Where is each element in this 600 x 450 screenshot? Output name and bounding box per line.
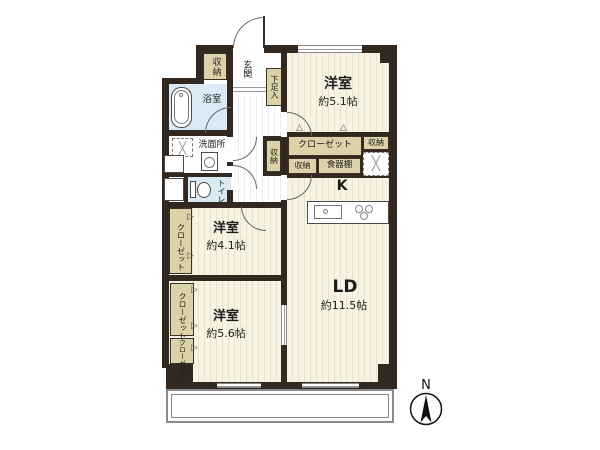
entrance-storage-box: 収納	[203, 53, 227, 80]
equipment-cross-icon: ╳	[179, 141, 186, 155]
room-living-dining-name: LD	[333, 278, 358, 297]
room-western3-name: 洋室	[213, 310, 239, 324]
pipe-space-box	[164, 178, 184, 201]
sliding-door-west3-living	[281, 305, 287, 345]
bathtub-drain	[179, 93, 183, 97]
wall	[281, 345, 287, 389]
shoe-cabinet-box: 下足入	[266, 68, 282, 106]
compass-north-label: N	[421, 378, 431, 393]
room-toilet-name: トイレ	[216, 179, 226, 203]
kitchen-sink	[314, 205, 342, 219]
wall	[184, 177, 188, 202]
sink-drain	[323, 209, 328, 214]
toilet-tank	[190, 181, 196, 198]
closet-west3-upper-label: クローゼット	[177, 292, 187, 328]
storage-top-right-label: 収納	[368, 139, 384, 148]
wall	[281, 208, 287, 305]
room-living-dining-size: 約11.5帖	[321, 300, 368, 312]
front-door-swing	[233, 17, 264, 48]
room-kitchen-name: K	[337, 179, 348, 194]
wall	[227, 190, 233, 202]
room-western1-size: 約5.1帖	[318, 96, 358, 108]
wall-left	[162, 78, 169, 368]
hall-storage-box: 収納	[266, 140, 281, 172]
closet-west3-lower-label: クローゼット	[178, 339, 187, 363]
wall	[166, 173, 232, 177]
room-western1-name: 洋室	[324, 77, 352, 92]
stove-burner	[360, 212, 368, 220]
room-washroom-name: 洗面所	[198, 141, 225, 151]
compass: N	[404, 376, 448, 430]
main-closet-box: クローゼット	[288, 136, 362, 156]
shoe-cabinet-label: 下足入	[269, 75, 279, 99]
room-western2-size: 約4.1帖	[206, 240, 246, 252]
window-sash-line	[302, 386, 359, 387]
door-swing-marker: △	[296, 124, 303, 133]
storage-top-right-box: 収納	[363, 136, 389, 150]
main-closet-label: クローゼット	[298, 141, 352, 151]
door-swing-marker: ▷	[191, 322, 198, 331]
kitchen-storage-label: 収納	[295, 162, 311, 171]
kitchen-storage-box: 収納	[288, 158, 317, 174]
pipe-space-box	[164, 155, 184, 173]
wall-corner-bottom-right	[378, 364, 397, 382]
door-swing-marker: ▷	[191, 344, 198, 353]
wall-right	[389, 45, 397, 389]
hall-storage-label: 収納	[269, 148, 279, 164]
cupboard-box: 食器棚	[318, 158, 361, 174]
floor-plan: 収納 下足入 収納 クローゼット 収納 収納 食器棚 ╳ クローゼット クローゼ…	[0, 0, 600, 450]
refrigerator-space-box: ╳	[363, 152, 389, 176]
equipment-cross-icon: ╳	[372, 156, 380, 172]
cupboard-label: 食器棚	[327, 161, 353, 170]
entrance-storage-label: 収納	[209, 57, 220, 77]
room-entrance-name: 玄関	[240, 60, 251, 78]
door-swing-marker: ▷	[187, 252, 194, 261]
window-bottom-west3	[217, 383, 261, 388]
door-swing-marker: ▷	[191, 286, 198, 295]
balcony-inner-line	[171, 394, 389, 418]
window-sash-line	[298, 49, 362, 50]
closet-west2-label: クローゼット	[176, 223, 186, 259]
room-western3-size: 約5.6帖	[206, 328, 246, 340]
wall	[162, 78, 204, 84]
window-sash-line	[217, 386, 261, 387]
window-sash-line	[284, 305, 285, 345]
toilet-bowl	[197, 182, 211, 198]
washbasin-bowl	[204, 157, 215, 168]
door-swing-marker: ▷	[187, 213, 194, 222]
window-top	[298, 45, 362, 53]
door-swing-marker: △	[340, 124, 347, 133]
window-bottom-living	[302, 383, 359, 388]
room-western2-name: 洋室	[213, 222, 239, 236]
wall	[281, 200, 287, 208]
wall	[162, 275, 287, 281]
room-bath-name: 浴室	[202, 95, 221, 105]
